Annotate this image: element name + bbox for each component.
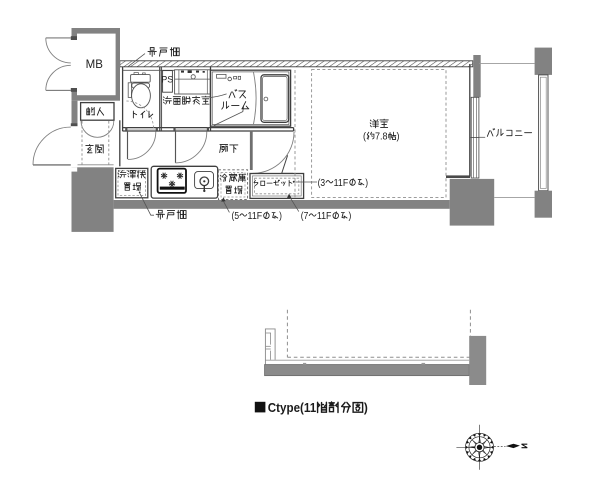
svg-text:PS: PS [161,74,173,84]
svg-text:): ) [364,400,368,415]
svg-text:): ) [365,177,368,189]
svg-text:11F: 11F [317,210,332,222]
svg-text:): ) [348,210,351,222]
svg-text:11F: 11F [248,210,263,222]
svg-text:): ) [397,132,400,143]
svg-text:11F: 11F [334,177,349,189]
svg-text:7.8: 7.8 [375,132,388,143]
svg-text:): ) [279,210,282,222]
svg-text:(3: (3 [318,177,326,189]
svg-text:Ctype(11: Ctype(11 [268,400,316,415]
svg-text:MB: MB [86,59,104,71]
svg-text:(5: (5 [232,210,240,222]
svg-text:(7: (7 [301,210,309,222]
